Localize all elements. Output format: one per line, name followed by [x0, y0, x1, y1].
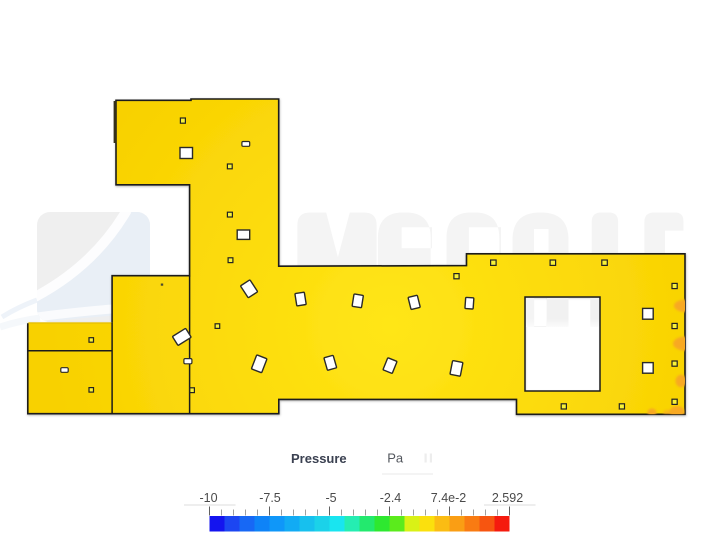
- svg-text:Pa: Pa: [387, 451, 404, 466]
- svg-text:-10: -10: [199, 491, 217, 505]
- svg-text:-2.4: -2.4: [380, 491, 402, 505]
- svg-text:2.592: 2.592: [492, 491, 523, 505]
- svg-text:Pressure: Pressure: [291, 451, 347, 466]
- svg-text:-5: -5: [325, 491, 336, 505]
- svg-text:-7.5: -7.5: [259, 491, 281, 505]
- svg-text:7.4e-2: 7.4e-2: [431, 491, 466, 505]
